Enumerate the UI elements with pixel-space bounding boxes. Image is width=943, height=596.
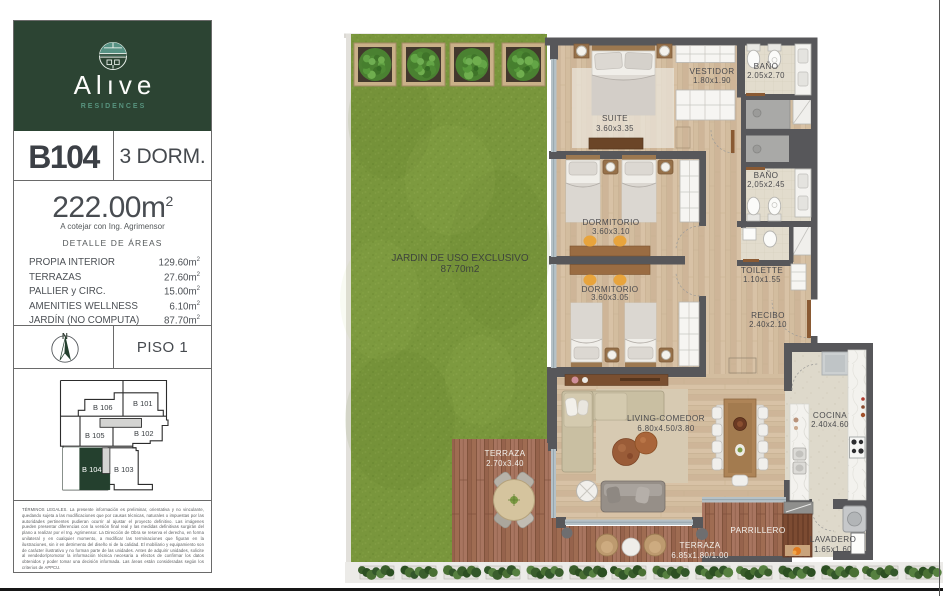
svg-text:2,05x2.45: 2,05x2.45 bbox=[747, 180, 785, 189]
svg-text:1.65x1.60: 1.65x1.60 bbox=[814, 545, 852, 554]
svg-text:1.10x1.55: 1.10x1.55 bbox=[743, 275, 781, 284]
svg-text:RECIBO: RECIBO bbox=[751, 311, 785, 320]
svg-text:JARDIN DE USO EXCLUSIVO: JARDIN DE USO EXCLUSIVO bbox=[391, 253, 528, 264]
svg-text:2.05x2.70: 2.05x2.70 bbox=[747, 71, 785, 80]
svg-text:2.70x3.40: 2.70x3.40 bbox=[486, 459, 524, 468]
svg-text:1.80x1.90: 1.80x1.90 bbox=[693, 76, 731, 85]
svg-text:2.40x2.10: 2.40x2.10 bbox=[749, 320, 787, 329]
svg-text:DORMITORIO: DORMITORIO bbox=[582, 218, 639, 227]
svg-text:87.70m2: 87.70m2 bbox=[441, 264, 480, 275]
svg-text:COCINA: COCINA bbox=[813, 411, 847, 420]
svg-text:TOILETTE: TOILETTE bbox=[741, 266, 783, 275]
svg-text:VESTIDOR: VESTIDOR bbox=[689, 67, 734, 76]
svg-text:TERRAZA: TERRAZA bbox=[679, 541, 720, 550]
svg-text:3.60x3.05: 3.60x3.05 bbox=[591, 293, 629, 302]
svg-text:LIVING-COMEDOR: LIVING-COMEDOR bbox=[627, 414, 705, 423]
svg-text:BAÑO: BAÑO bbox=[754, 61, 779, 71]
svg-text:3.60x3.35: 3.60x3.35 bbox=[596, 124, 634, 133]
svg-text:LAVADERO: LAVADERO bbox=[810, 535, 857, 544]
svg-text:2.40x4.60: 2.40x4.60 bbox=[811, 420, 849, 429]
svg-text:BAÑO: BAÑO bbox=[754, 170, 779, 180]
svg-text:3.60x3.10: 3.60x3.10 bbox=[592, 227, 630, 236]
svg-text:TERRAZA: TERRAZA bbox=[484, 449, 525, 458]
svg-text:PARRILLERO: PARRILLERO bbox=[730, 526, 785, 535]
svg-text:SUITE: SUITE bbox=[602, 114, 628, 123]
svg-text:6.85x1.80/1.00: 6.85x1.80/1.00 bbox=[671, 551, 728, 560]
svg-text:6.80x4.50/3.80: 6.80x4.50/3.80 bbox=[637, 424, 694, 433]
